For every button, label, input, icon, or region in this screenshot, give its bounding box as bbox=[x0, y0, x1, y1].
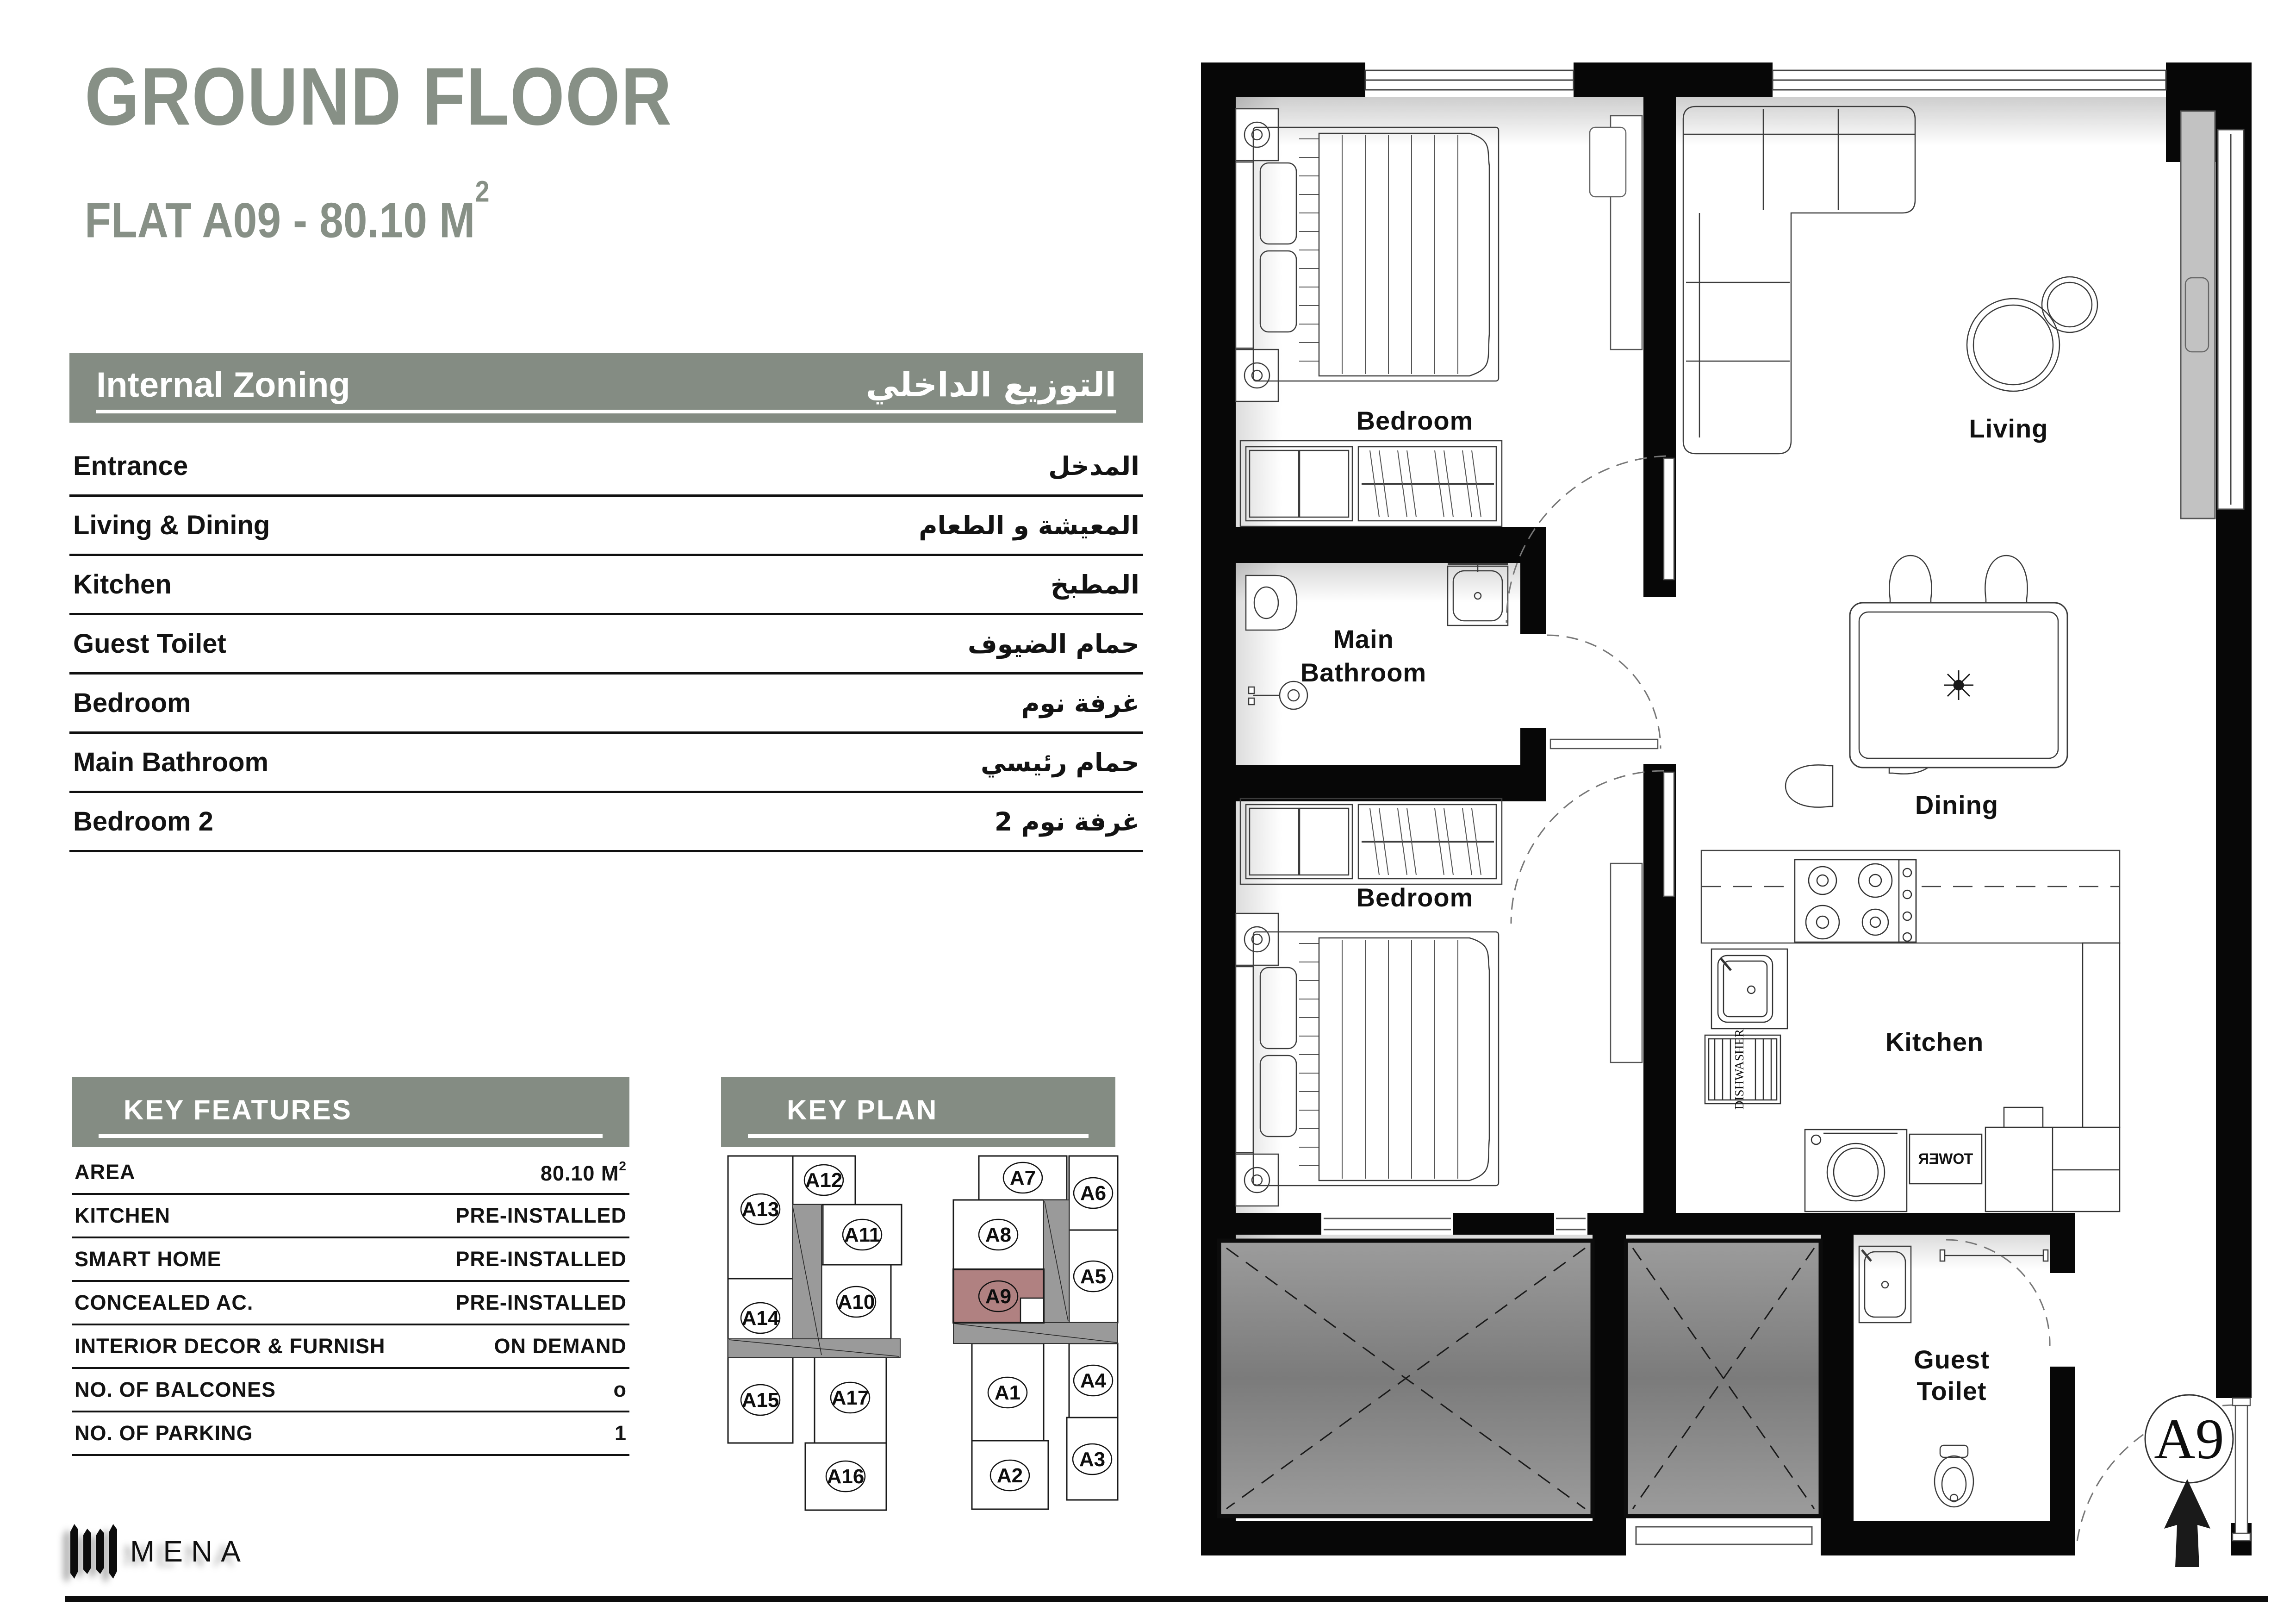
header-underline bbox=[99, 1134, 603, 1138]
zoning-label-ar: المدخل bbox=[1048, 451, 1139, 481]
zoning-row-main-bathroom: Main Bathroomحمام رئيسي bbox=[69, 734, 1143, 793]
zoning-row-entrance: Entranceالمدخل bbox=[69, 437, 1143, 497]
mena-logo-icon bbox=[70, 1524, 117, 1579]
table-plant bbox=[1944, 670, 1973, 700]
feature-label: KITCHEN bbox=[75, 1204, 170, 1228]
unit-label-a14: A14 bbox=[742, 1307, 779, 1330]
feature-row-area: AREA80.10 M2 bbox=[72, 1151, 629, 1195]
entrance-arrow-icon bbox=[2164, 1479, 2210, 1567]
key-features-title: KEY FEATURES bbox=[124, 1094, 352, 1126]
zoning-label-en: Living & Dining bbox=[73, 510, 270, 541]
zoning-label-en: Entrance bbox=[73, 450, 188, 481]
room-label-main-bath-1: Main bbox=[1333, 625, 1394, 654]
feature-value-sup: 2 bbox=[619, 1159, 627, 1173]
internal-zoning-table: Entranceالمدخل Living & Diningالمعيشة و … bbox=[69, 437, 1143, 852]
zoning-row-kitchen: Kitchenالمطبخ bbox=[69, 556, 1143, 615]
room-label-bedroom1: Bedroom bbox=[1356, 406, 1474, 435]
zoning-row-living-dining: Living & Diningالمعيشة و الطعام bbox=[69, 497, 1143, 556]
internal-zoning-title-ar: التوزيع الداخلي bbox=[866, 365, 1116, 404]
unit-label-a8: A8 bbox=[985, 1224, 1011, 1246]
living-wardrobe-panel bbox=[2181, 111, 2215, 518]
feature-label: CONCEALED AC. bbox=[75, 1291, 253, 1315]
room-label-main-bath-2: Bathroom bbox=[1300, 658, 1426, 687]
feature-value: PRE-INSTALLED bbox=[455, 1204, 627, 1228]
zoning-label-ar: حمام رئيسي bbox=[981, 748, 1139, 777]
zoning-row-bedroom-2: Bedroom 2غرفة نوم 2 bbox=[69, 793, 1143, 852]
unit-label-a12: A12 bbox=[805, 1169, 843, 1192]
feature-value: PRE-INSTALLED bbox=[455, 1291, 627, 1315]
brochure-page: GROUND FLOOR FLAT A09 - 80.10 M2 Interna… bbox=[0, 0, 2296, 1624]
area-superscript: 2 bbox=[475, 175, 489, 208]
zoning-label-ar: غرفة نوم bbox=[1021, 688, 1139, 718]
tower-label-mirrored: TOWER bbox=[1918, 1150, 1973, 1167]
feature-row-concealed-ac: CONCEALED AC.PRE-INSTALLED bbox=[72, 1282, 629, 1325]
bedroom2-console bbox=[1611, 863, 1642, 1062]
unit-label-a9: A9 bbox=[985, 1285, 1011, 1308]
unit-label-a4: A4 bbox=[1080, 1369, 1107, 1392]
key-plan-diagram: A13 A12 A11 A14 A10 A15 A17 A16 A7 A6 A8… bbox=[722, 1154, 1120, 1515]
feature-label: SMART HOME bbox=[75, 1247, 222, 1271]
feature-label: INTERIOR DECOR & FURNISH bbox=[75, 1334, 386, 1358]
room-label-kitchen: Kitchen bbox=[1885, 1027, 1984, 1056]
flat-subtitle: FLAT A09 - 80.10 M2 bbox=[85, 175, 672, 249]
unit-label-a11: A11 bbox=[844, 1224, 880, 1246]
zoning-label-en: Kitchen bbox=[73, 569, 172, 600]
bottom-rule bbox=[65, 1596, 2268, 1602]
zoning-label-ar: المطبخ bbox=[1051, 570, 1139, 600]
page-title-block: GROUND FLOOR FLAT A09 - 80.10 M2 bbox=[85, 50, 697, 242]
zoning-label-en: Main Bathroom bbox=[73, 747, 268, 778]
internal-zoning-title-en: Internal Zoning bbox=[96, 365, 350, 405]
internal-zoning-header: Internal Zoning التوزيع الداخلي bbox=[69, 353, 1143, 423]
feature-row-smart-home: SMART HOMEPRE-INSTALLED bbox=[72, 1238, 629, 1282]
zoning-label-ar: حمام الضيوف bbox=[968, 629, 1139, 659]
zoning-row-bedroom: Bedroomغرفة نوم bbox=[69, 675, 1143, 734]
zoning-label-en: Bedroom bbox=[73, 687, 191, 718]
unit-label-a16: A16 bbox=[827, 1465, 865, 1488]
bedroom-chair bbox=[1590, 127, 1626, 197]
brand-name: MENA bbox=[130, 1534, 249, 1568]
sofa-l-shaped bbox=[1683, 106, 1915, 454]
brand-logo: MENA bbox=[70, 1524, 249, 1579]
unit-label-a15: A15 bbox=[742, 1389, 779, 1412]
flat-subtitle-text: FLAT A09 - 80.10 M bbox=[85, 193, 475, 248]
feature-value: PRE-INSTALLED bbox=[455, 1247, 627, 1271]
room-label-bedroom2: Bedroom bbox=[1356, 883, 1474, 912]
zoning-label-ar: المعيشة و الطعام bbox=[919, 511, 1139, 540]
key-features-table: AREA80.10 M2 KITCHENPRE-INSTALLED SMART … bbox=[72, 1151, 629, 1456]
room-label-dining: Dining bbox=[1915, 790, 1998, 819]
unit-a9-notch bbox=[1020, 1298, 1044, 1323]
zoning-label-en: Guest Toilet bbox=[73, 628, 226, 659]
coffee-tables bbox=[1967, 277, 2097, 391]
feature-value: 1 bbox=[615, 1421, 627, 1445]
floor-plan-drawing: DISHWASHER TOWER bbox=[1176, 19, 2296, 1620]
feature-row-parking: NO. OF PARKING1 bbox=[72, 1412, 629, 1456]
zoning-label-en: Bedroom 2 bbox=[73, 806, 213, 837]
wall-shadow bbox=[1236, 97, 2212, 146]
key-features-header: KEY FEATURES bbox=[72, 1077, 629, 1147]
feature-label: NO. OF BALCONES bbox=[75, 1378, 276, 1402]
unit-label-a2: A2 bbox=[997, 1464, 1023, 1487]
feature-row-interior-decor: INTERIOR DECOR & FURNISHON DEMAND bbox=[72, 1325, 629, 1369]
feature-value: ON DEMAND bbox=[494, 1334, 627, 1358]
header-underline bbox=[748, 1134, 1089, 1138]
dishwasher-label: DISHWASHER bbox=[1732, 1029, 1746, 1110]
unit-entrance-marker: A9 bbox=[2145, 1395, 2233, 1567]
room-label-living: Living bbox=[1969, 414, 2048, 443]
room-label-guest-2: Toilet bbox=[1916, 1376, 1986, 1405]
unit-label-a1: A1 bbox=[995, 1381, 1020, 1404]
zoning-row-guest-toilet: Guest Toiletحمام الضيوف bbox=[69, 615, 1143, 675]
key-plan-title: KEY PLAN bbox=[787, 1094, 938, 1126]
unit-label-a3: A3 bbox=[1079, 1448, 1105, 1471]
floor-title: GROUND FLOOR bbox=[85, 50, 672, 144]
feature-value: o bbox=[614, 1378, 627, 1402]
unit-label-a5: A5 bbox=[1080, 1265, 1106, 1288]
feature-row-balconies: NO. OF BALCONESo bbox=[72, 1369, 629, 1412]
unit-label-a7: A7 bbox=[1010, 1167, 1036, 1189]
unit-label-a10: A10 bbox=[838, 1291, 875, 1313]
feature-value: 80.10 M bbox=[541, 1162, 619, 1185]
key-plan-header: KEY PLAN bbox=[721, 1077, 1115, 1147]
entrance-unit-label: A9 bbox=[2154, 1407, 2224, 1471]
feature-label: NO. OF PARKING bbox=[75, 1421, 253, 1445]
unit-label-a17: A17 bbox=[832, 1387, 869, 1409]
service-shafts bbox=[1219, 1241, 1821, 1516]
header-underline bbox=[96, 410, 1116, 413]
room-label-guest-1: Guest bbox=[1914, 1345, 1990, 1374]
unit-label-a13: A13 bbox=[742, 1198, 779, 1221]
unit-label-a6: A6 bbox=[1080, 1182, 1106, 1205]
feature-label: AREA bbox=[75, 1160, 136, 1184]
zoning-label-ar: غرفة نوم 2 bbox=[995, 807, 1139, 837]
feature-row-kitchen: KITCHENPRE-INSTALLED bbox=[72, 1195, 629, 1238]
